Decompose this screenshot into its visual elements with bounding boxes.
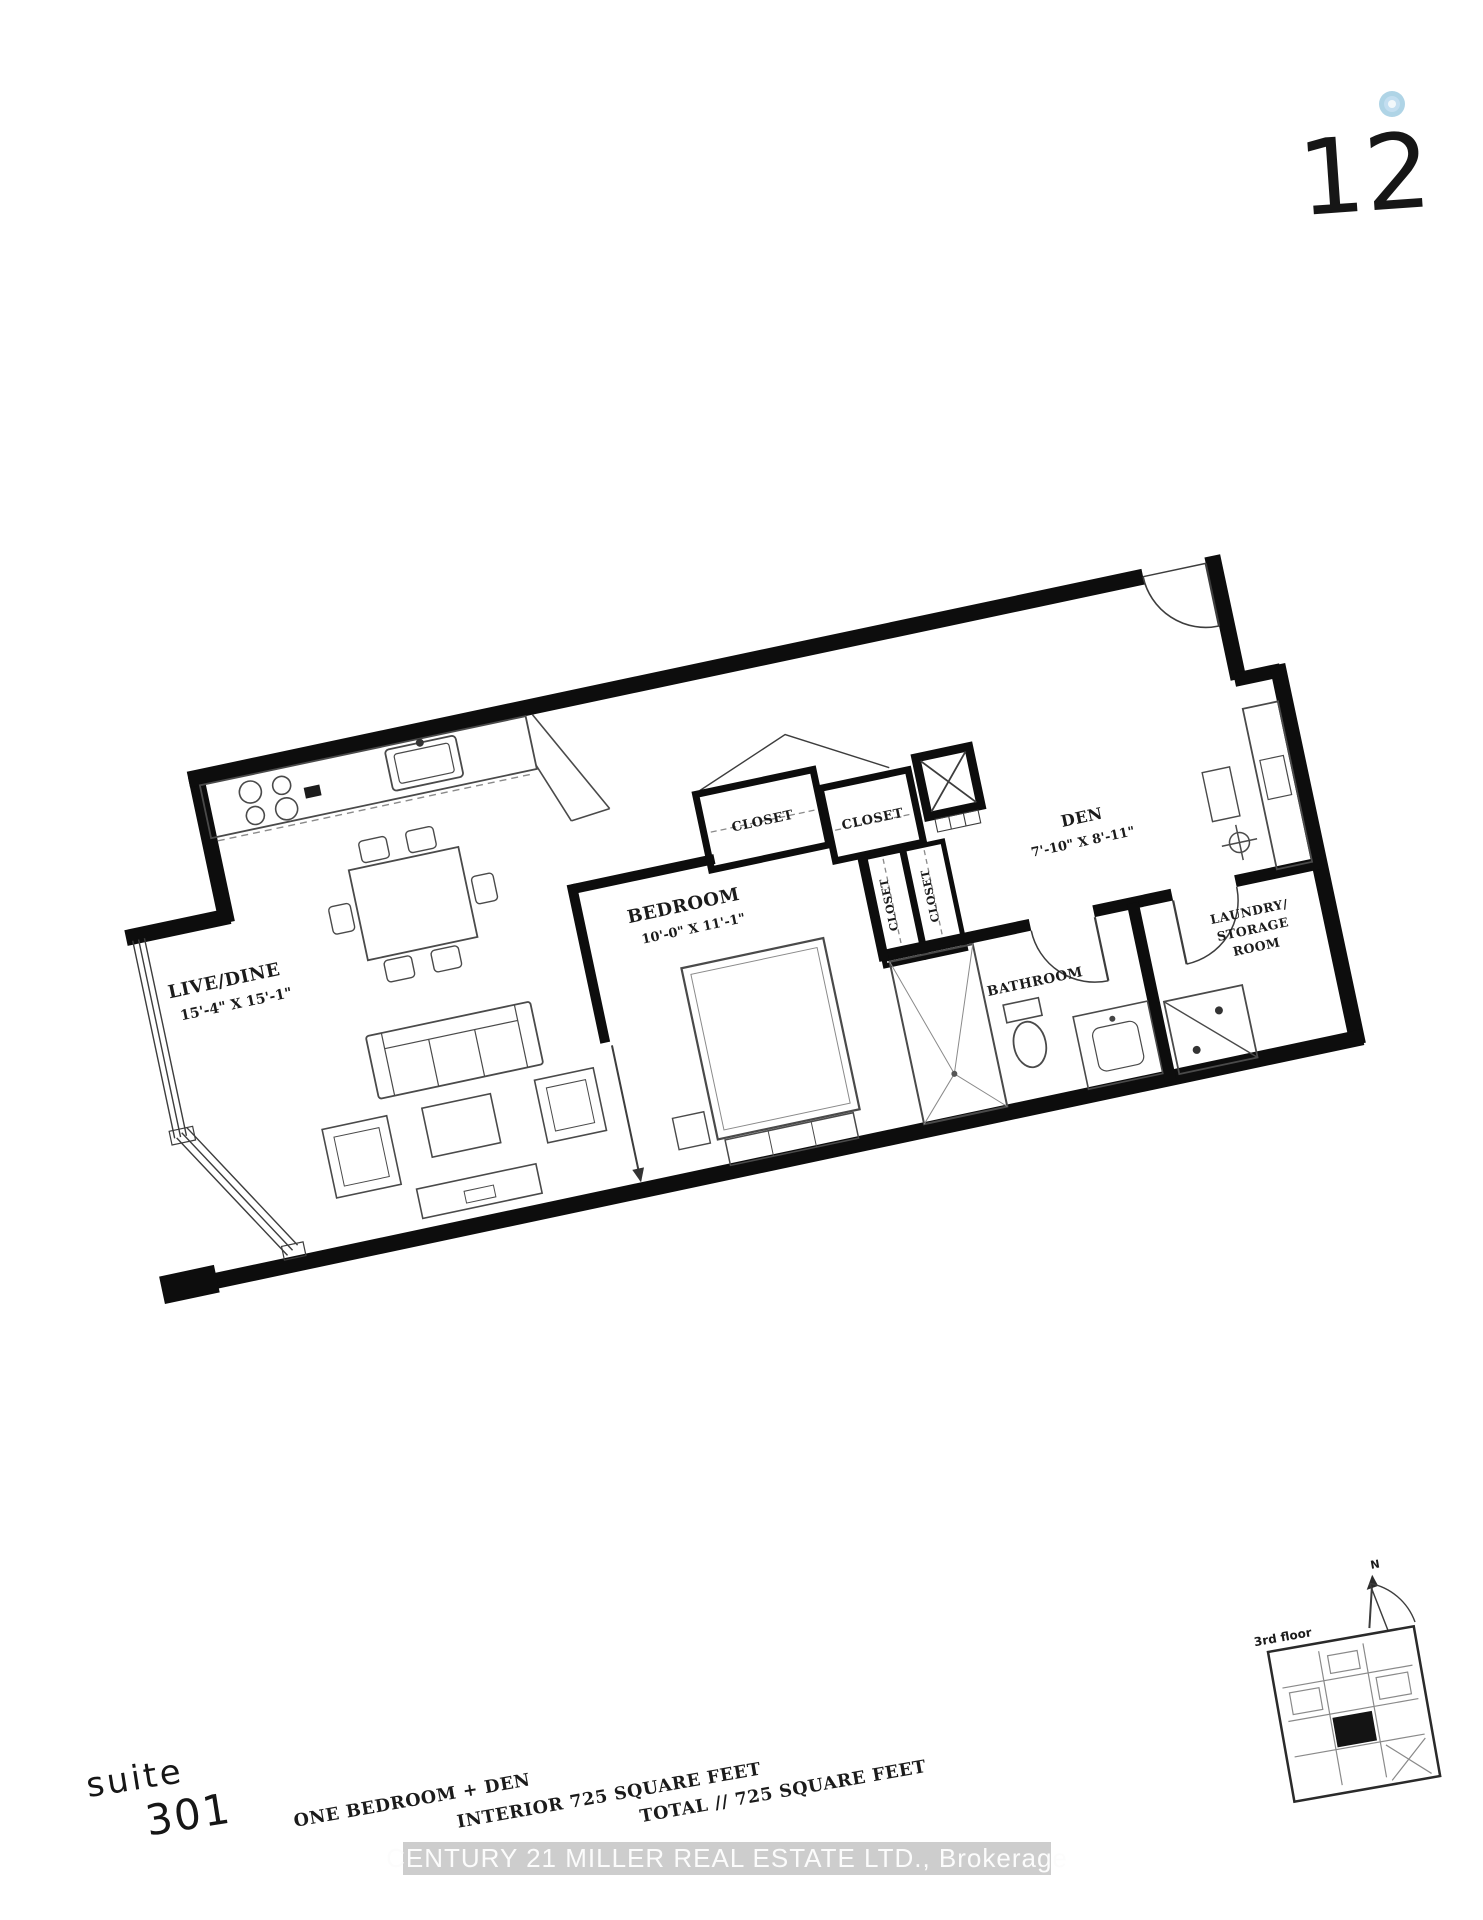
logo-number: 12 [1294,109,1435,240]
wall-stub [159,1265,220,1304]
room-labels: LIVE/DINE 15'-4" X 15'-1" BEDROOM 10'-0"… [158,711,1297,1177]
unit-plan: LIVE/DINE 15'-4" X 15'-1" BEDROOM 10'-0"… [58,546,1365,1304]
entry-door [1143,563,1219,639]
bathroom-label: BATHROOM [986,964,1085,1000]
floorplan-canvas: 12 [0,0,1483,1920]
building-logo: 12 [1294,91,1435,240]
closets [687,698,1009,997]
den-dims: 7'-10" X 8'-11" [1030,824,1137,861]
office-chair-icon [1218,821,1261,864]
bed-icon [642,938,865,1175]
sink-vanity-icon [1073,1001,1163,1089]
shower-icon [890,944,1008,1124]
floorplan-page: 12 [0,0,1483,1920]
sofa-icon [366,1001,544,1099]
shaft-box-icon [916,747,985,834]
north-label: N [1369,1557,1380,1571]
watermark-text: CENTURY 21 MILLER REAL ESTATE LTD., Brok… [386,1843,1068,1873]
washer-dryer-icon [1164,985,1258,1074]
armchair-right-icon [534,1068,606,1143]
brokerage-watermark: CENTURY 21 MILLER REAL ESTATE LTD., Brok… [386,1842,1068,1875]
summary-annotations: ONE BEDROOM + DEN INTERIOR 725 SQUARE FE… [292,1757,928,1833]
coffee-table-icon [422,1094,501,1157]
logo-degree-icon [1379,91,1405,117]
toilet-icon [1003,998,1052,1071]
slide-arrow-icon [632,1167,647,1183]
den-label: DEN [1059,804,1104,831]
cooktop-icon [237,767,325,829]
key-plan: 3rd floor N [1243,1553,1442,1804]
closet-top-right-label: CLOSET [840,806,905,834]
armchair-left-icon [322,1116,401,1198]
closet-top-left-label: CLOSET [730,808,795,836]
suite-number-block: suite 301 [83,1751,234,1845]
dining-set [316,816,510,992]
closet-hall-right-label: CLOSET [918,868,942,923]
